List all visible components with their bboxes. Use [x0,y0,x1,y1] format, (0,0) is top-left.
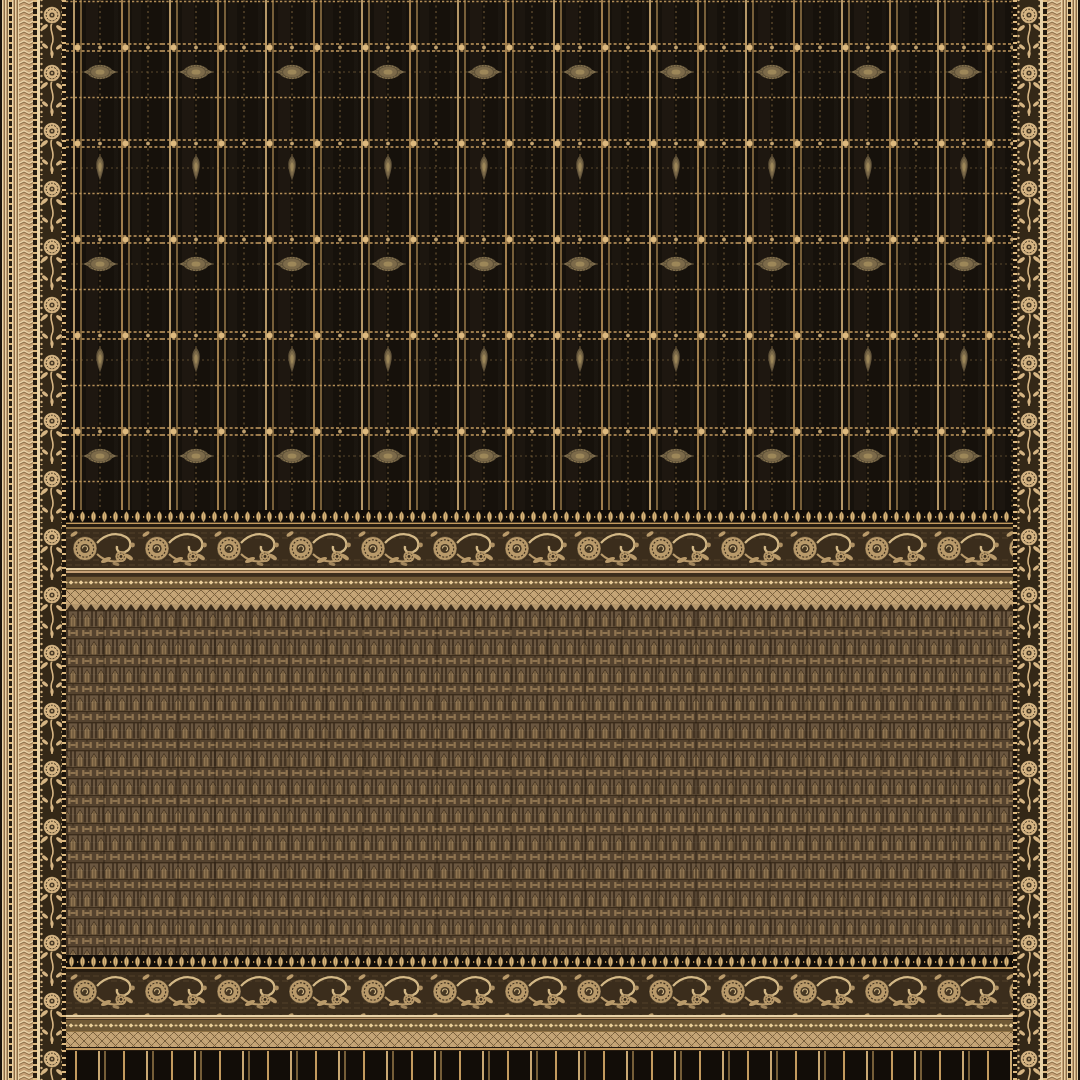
saree-fabric-photo [0,0,1080,1080]
striped-hem-band [66,1051,1013,1080]
bud-fringe-band-top [66,510,1013,523]
floral-scroll-pattern-2 [66,972,1013,1015]
pallu-brocade-panel [66,610,1013,955]
left-herringbone-band [19,0,33,1080]
diamond-chain-pattern-2 [66,1019,1013,1031]
bud-fringe-band-bottom [66,955,1013,967]
saree-body-checks [66,0,1013,510]
bud-fringe-pattern-2 [66,955,1013,967]
floral-scroll-band-bottom [66,972,1013,1015]
floral-vine-pattern-mirrored [1017,0,1040,1080]
left-fine-stripe-band [2,0,9,1080]
right-selvage-border [1013,0,1080,1080]
lattice-pattern-2 [66,1032,1013,1048]
lattice-pattern [66,590,1013,605]
floral-vine-pattern [40,0,62,1080]
floral-scroll-pattern [66,529,1013,568]
herringbone-pattern [19,0,33,1080]
right-floral-vine-band [1017,0,1040,1080]
right-herringbone-band [1047,0,1061,1080]
left-selvage-border [0,0,66,1080]
pallu-weave-streaks [66,610,1013,955]
diamond-chain-band-top [66,576,1013,589]
body-weave-sheen [66,0,1013,510]
left-floral-vine-band [40,0,62,1080]
left-fine-stripe-band-2 [12,0,19,1080]
warp-stripe-pattern [66,1051,1013,1080]
thin-line-band-top [66,568,1013,576]
diamond-chain-band-bottom [66,1019,1013,1031]
right-fine-stripe-band [1061,0,1068,1080]
bud-fringe-pattern [66,510,1013,523]
floral-scroll-band-top [66,529,1013,568]
right-fine-stripe-band-2 [1071,0,1078,1080]
herringbone-pattern-2 [1047,0,1061,1080]
diamond-chain-pattern [66,576,1013,589]
